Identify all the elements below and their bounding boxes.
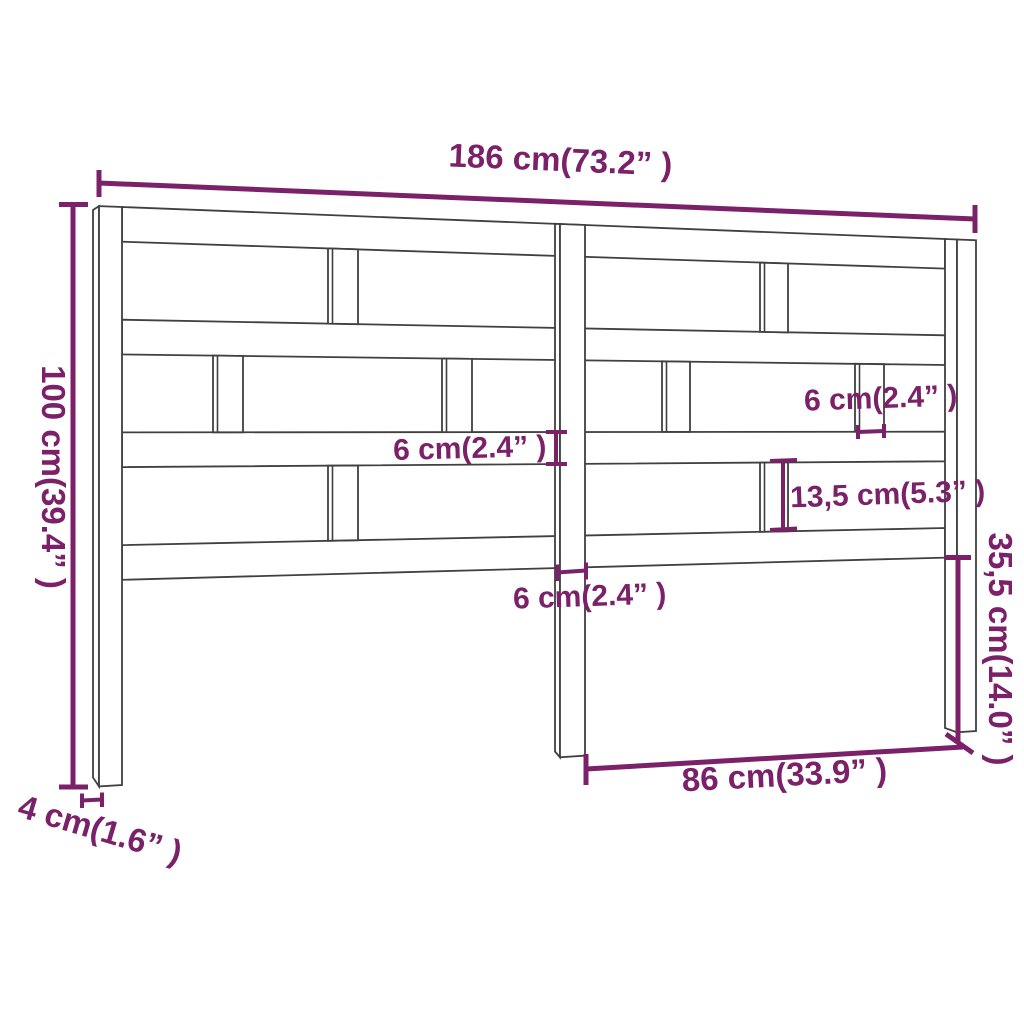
depth-dim-line bbox=[82, 800, 102, 801]
rail-thickness-dimension: 6 cm(2.4” ) bbox=[393, 430, 567, 467]
spacer-width-dimension: 6 cm(2.4” ) bbox=[803, 379, 957, 439]
slat-gap-label: 13,5 cm(5.3” ) bbox=[790, 475, 986, 515]
height-dimension: 100 cm(39.4” ) bbox=[35, 205, 88, 788]
width-dim-label: 186 cm(73.2” ) bbox=[448, 136, 673, 182]
center-post-front-face bbox=[560, 224, 585, 757]
slat-gap-cap-bottom bbox=[770, 529, 797, 531]
headboard-dimension-drawing: 186 cm(73.2” ) 100 cm(39.4” ) 35,5 cm(14… bbox=[0, 0, 1024, 1024]
height-dim-label: 100 cm(39.4” ) bbox=[35, 365, 72, 589]
diagram-canvas: 186 cm(73.2” ) 100 cm(39.4” ) 35,5 cm(14… bbox=[0, 0, 1024, 1024]
spacer-width-dim-line bbox=[858, 431, 884, 432]
post-width-label: 6 cm(2.4” ) bbox=[512, 577, 666, 615]
rail-2 bbox=[122, 320, 945, 365]
post-width-dim-line bbox=[557, 571, 586, 573]
post-width-dimension: 6 cm(2.4” ) bbox=[512, 563, 666, 616]
leg-span-dim-label: 86 cm(33.9” ) bbox=[681, 751, 888, 799]
left-post-front-face bbox=[99, 206, 122, 786]
rail-thickness-label: 6 cm(2.4” ) bbox=[393, 430, 547, 467]
center-post bbox=[555, 224, 585, 758]
rail-4 bbox=[122, 528, 945, 580]
slat-gap-cap-top bbox=[770, 460, 797, 461]
top-rail bbox=[122, 207, 945, 269]
spacer-width-label: 6 cm(2.4” ) bbox=[803, 379, 957, 417]
depth-dimension: 4 cm(1.6” ) bbox=[14, 787, 186, 870]
left-post bbox=[93, 206, 122, 786]
leg-span-dimension: 86 cm(33.9” ) bbox=[586, 747, 963, 798]
leg-height-dimension: 35,5 cm(14.0” ) bbox=[945, 533, 1019, 766]
leg-height-dim-label: 35,5 cm(14.0” ) bbox=[982, 533, 1019, 766]
